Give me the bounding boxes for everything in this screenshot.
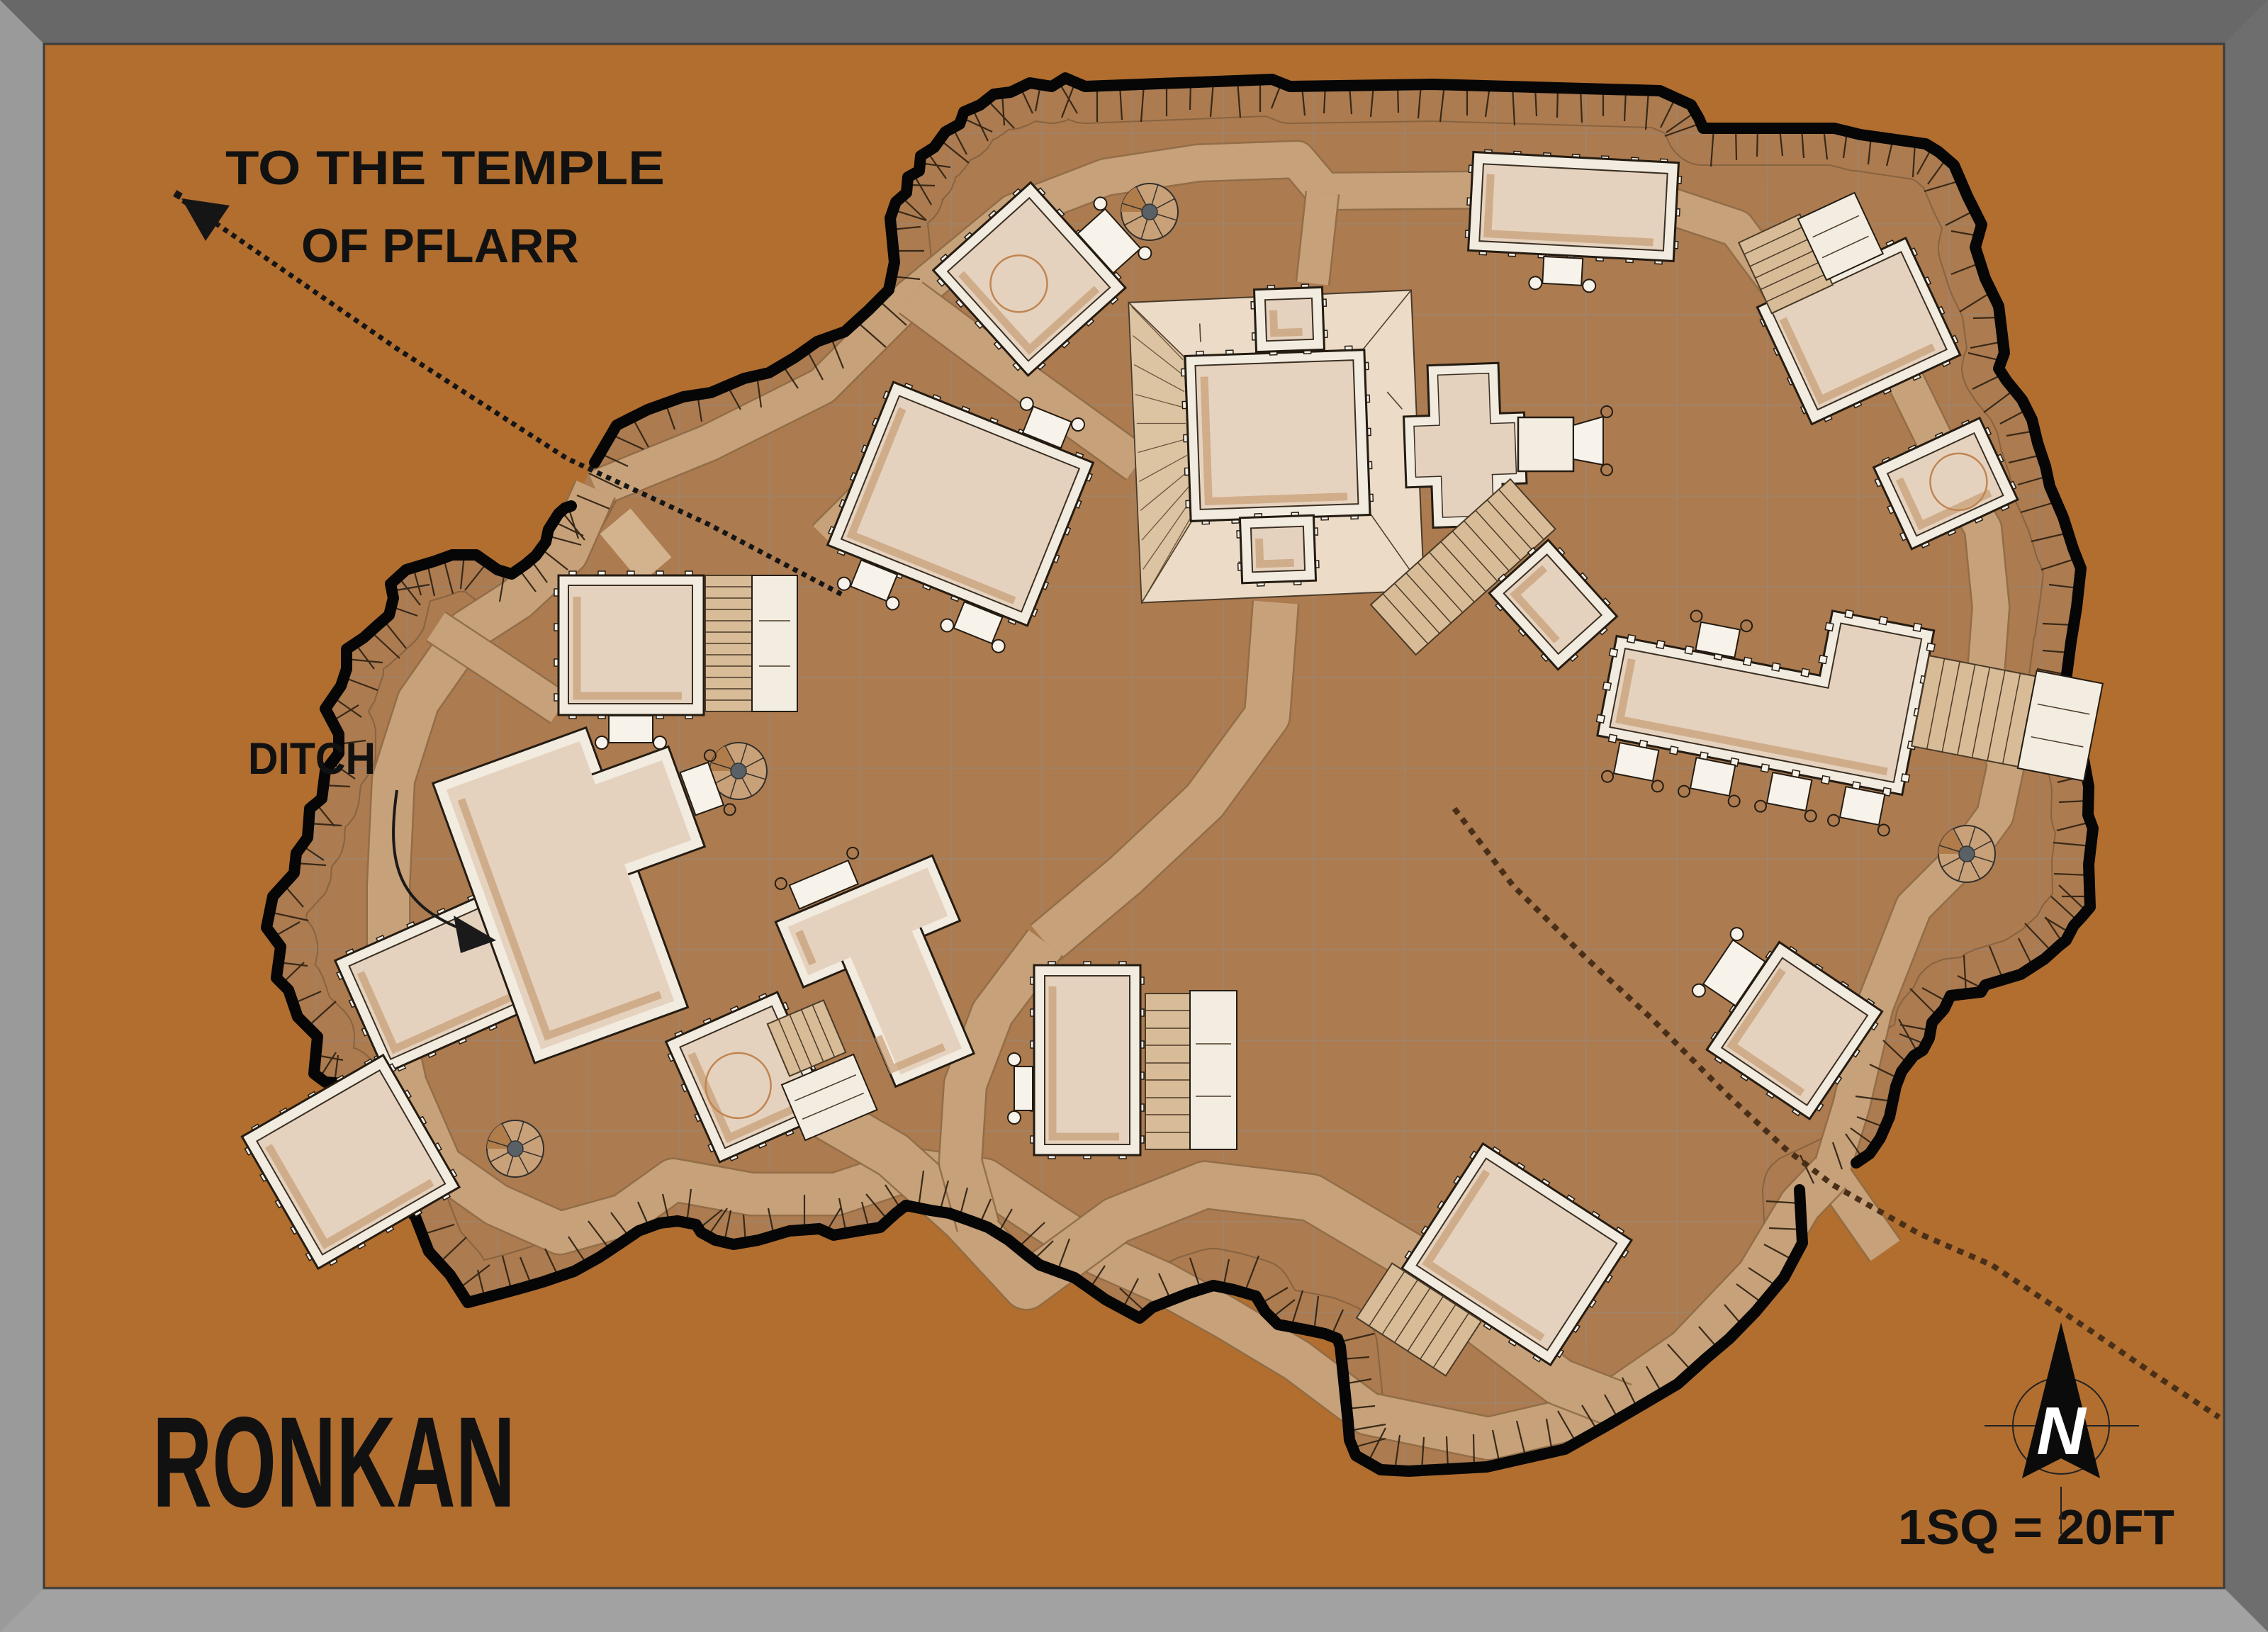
svg-text:OF PFLARR: OF PFLARR	[301, 219, 579, 273]
svg-text:N: N	[2036, 1393, 2087, 1469]
svg-text:RONKAN: RONKAN	[152, 1390, 515, 1534]
svg-text:DITCH: DITCH	[248, 734, 376, 784]
svg-text:TO THE TEMPLE: TO THE TEMPLE	[225, 141, 665, 195]
svg-text:1SQ = 20FT: 1SQ = 20FT	[1898, 1499, 2174, 1555]
